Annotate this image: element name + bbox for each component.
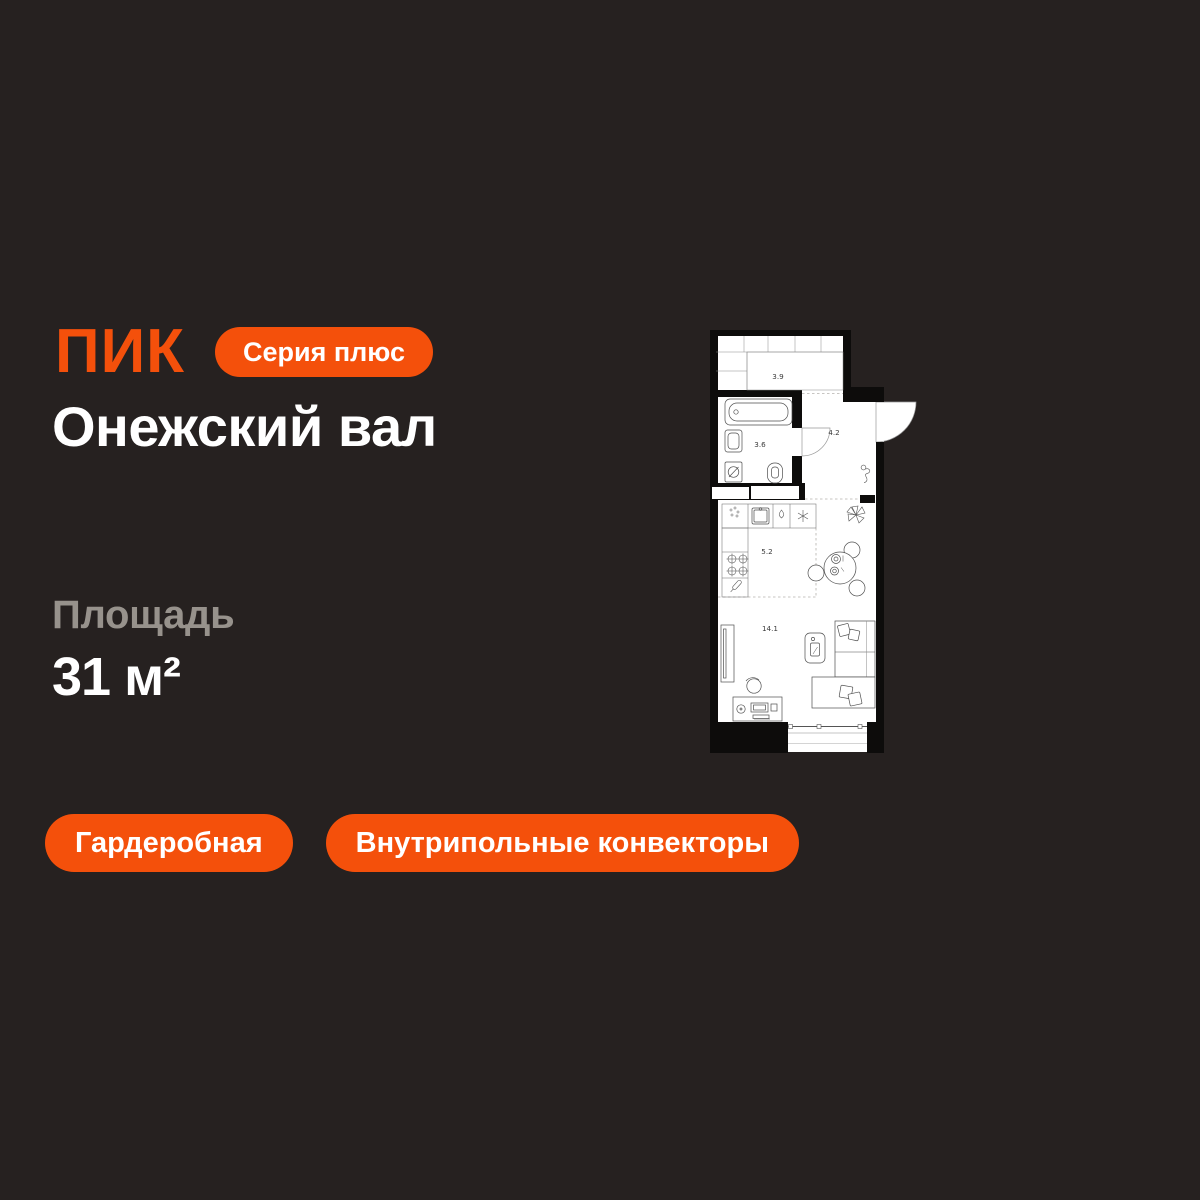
series-badge: Серия плюс xyxy=(215,327,433,377)
pik-logo: ПИК xyxy=(55,327,185,377)
bathroom-sink-icon xyxy=(725,430,742,452)
toilet-icon xyxy=(768,463,783,483)
nightstand-icon xyxy=(805,633,825,663)
room-label-kitchen: 5.2 xyxy=(761,547,772,556)
bathtub-icon xyxy=(725,399,792,425)
area-block: Площадь 31 м² xyxy=(52,593,234,708)
room-label-storage: 3.9 xyxy=(772,372,784,381)
wall-niches xyxy=(712,486,799,499)
area-value: 31 м² xyxy=(52,646,234,708)
feature-badge-wardrobe: Гардеробная xyxy=(45,814,293,872)
tv-stand-icon xyxy=(721,625,734,682)
room-label-hallway: 4.2 xyxy=(828,428,839,437)
washing-machine-icon xyxy=(725,462,742,482)
entrance-door-swing xyxy=(876,402,916,442)
brand-row: ПИК Серия плюс xyxy=(55,327,433,377)
room-label-living: 14.1 xyxy=(762,624,778,633)
project-title: Онежский вал xyxy=(52,396,452,459)
feature-badge-convectors: Внутрипольные конвекторы xyxy=(326,814,799,872)
promo-card: ПИК Серия плюс Онежский вал Площадь 31 м… xyxy=(0,0,1200,1200)
room-label-bathroom: 3.6 xyxy=(754,440,766,449)
desk-icon xyxy=(733,697,782,721)
area-label: Площадь xyxy=(52,593,234,638)
floor-plan: 3.9 3.6 4.2 5.2 14.1 xyxy=(703,323,921,755)
feature-badges: Гардеробная Внутрипольные конвекторы xyxy=(45,814,799,872)
